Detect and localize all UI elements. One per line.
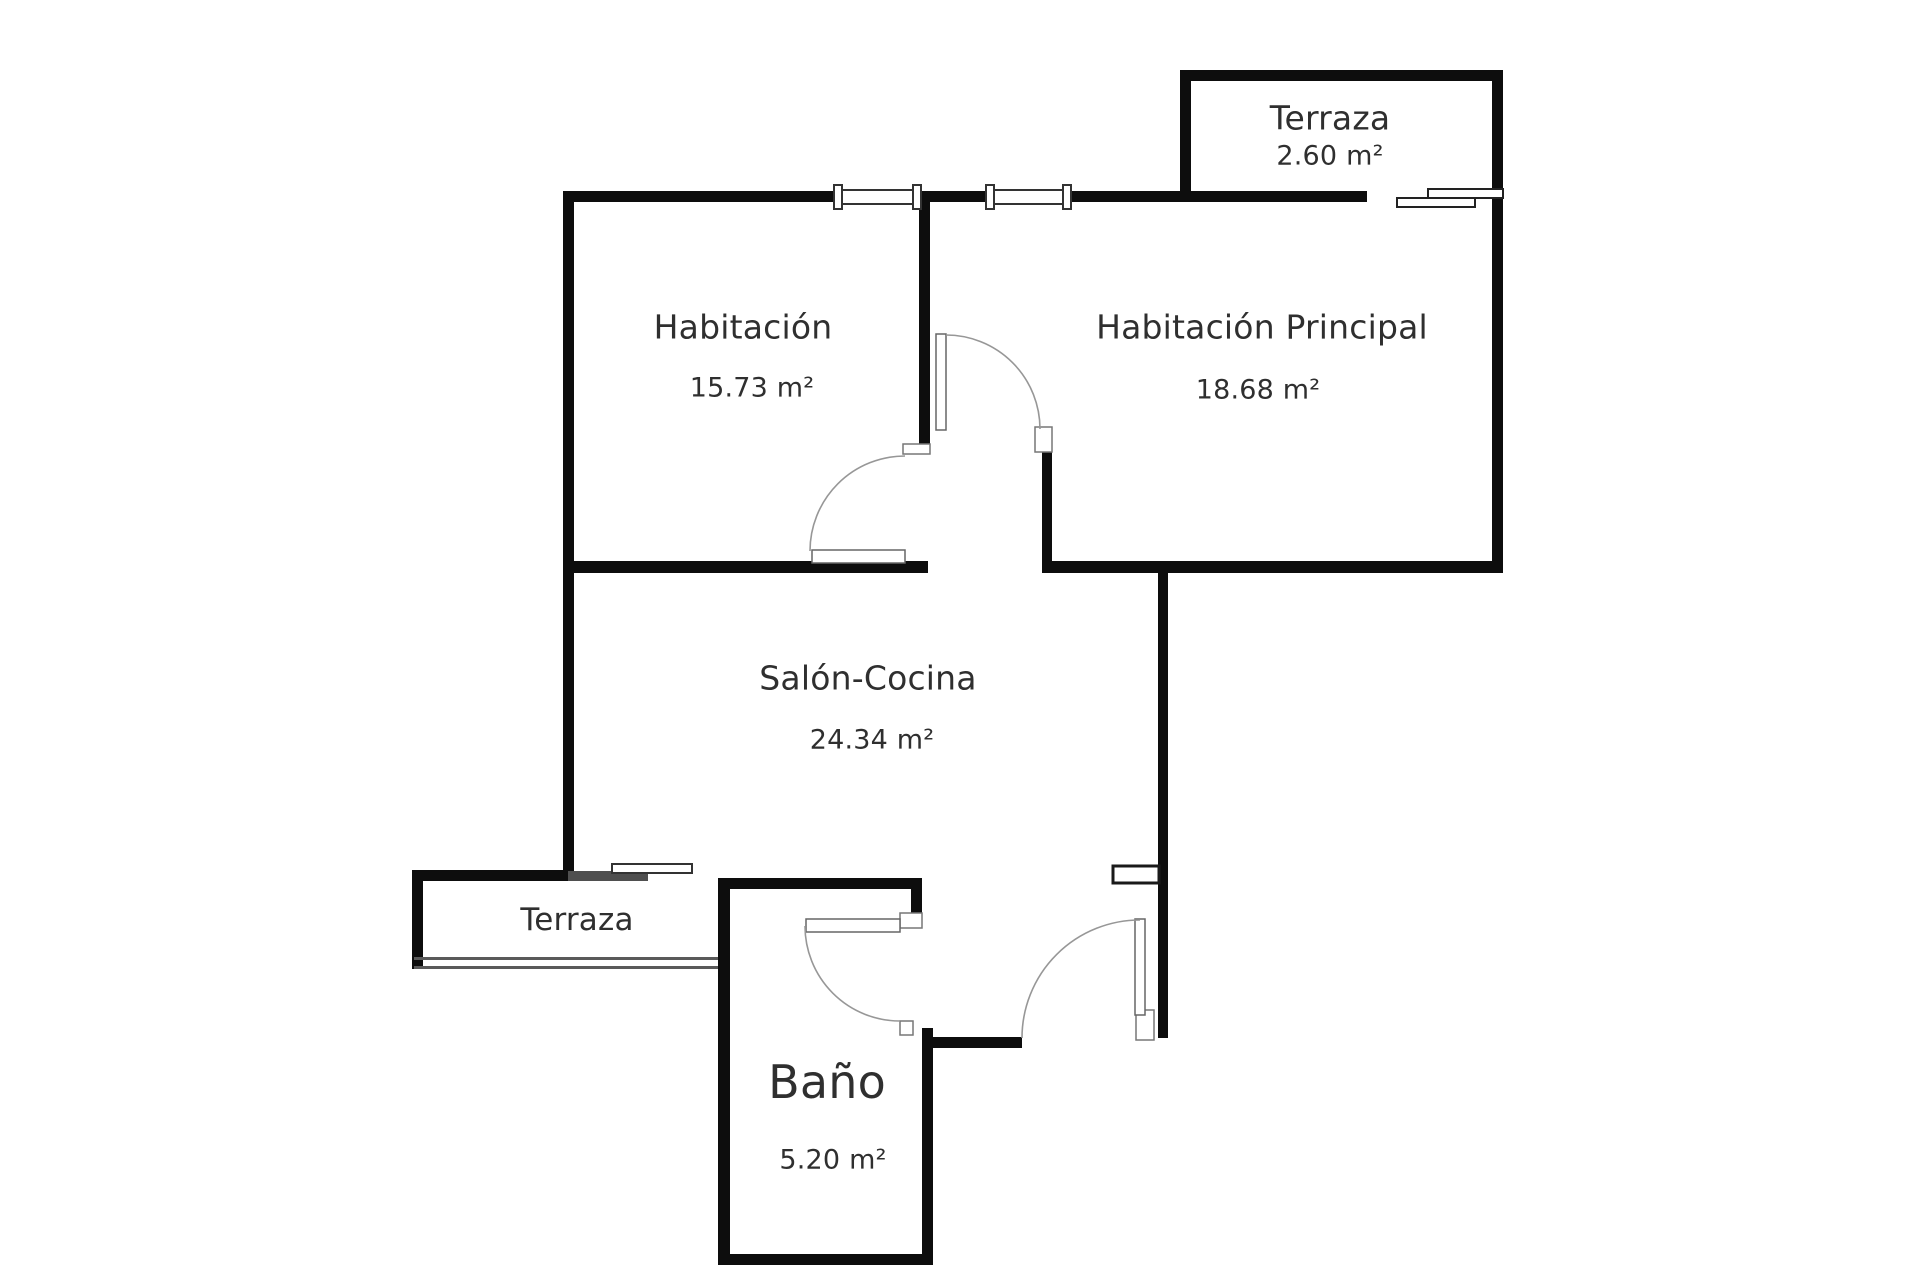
wall-habprincipal-door-stub — [1042, 450, 1052, 565]
door-leaf-habprincipal — [936, 334, 946, 430]
window-symbol-habitacion — [834, 185, 921, 209]
door-swing-arc-habitacion — [810, 456, 905, 551]
sliding-door-symbol-terraza-top — [1397, 189, 1503, 207]
wall-left-main — [563, 191, 574, 877]
wall-bano-left — [718, 878, 730, 1265]
wall-bano-bottom — [718, 1254, 933, 1265]
door-leaf-bano — [806, 919, 900, 932]
jamb-habprincipal-door — [1035, 427, 1052, 452]
door-leaf-habitacion — [812, 550, 905, 563]
door-swing-arc-habprincipal — [946, 335, 1040, 429]
room-area-bano: 5.20 m² — [779, 1145, 886, 1176]
floor-plan: Terraza 2.60 m² Habitación 15.73 m² Habi… — [0, 0, 1920, 1280]
room-name-terraza-top: Terraza — [1270, 99, 1391, 138]
room-area-salon-cocina: 24.34 m² — [810, 725, 935, 756]
floor-plan-drawing — [0, 0, 1920, 1280]
wall-habprincipal-top-b — [1066, 191, 1367, 202]
sliding-doors — [568, 189, 1503, 881]
window-symbol-habprincipal — [986, 185, 1071, 209]
wall-bano-top — [718, 878, 922, 889]
wall-terraza-bottom-left — [412, 870, 423, 969]
wall-habprincipal-top-a — [930, 191, 992, 202]
door-jambs — [900, 427, 1154, 1040]
room-name-habitacion-principal: Habitación Principal — [1096, 308, 1428, 347]
room-name-bano: Baño — [768, 1055, 886, 1109]
wall-bano-right-upper — [911, 888, 922, 915]
room-name-terraza-bottom: Terraza — [520, 902, 633, 938]
wall-habitacion-top — [563, 191, 837, 202]
railing-line-outer — [414, 957, 718, 960]
room-name-habitacion: Habitación — [654, 308, 833, 347]
jamb-bano-door-top — [900, 913, 922, 928]
wall-salon-right — [1158, 572, 1168, 1038]
door-swing-arc-entry — [1022, 920, 1140, 1038]
wall-corridor-bottom — [922, 1037, 1022, 1048]
windows — [834, 185, 1159, 883]
wall-terraza-bottom-top — [412, 870, 568, 881]
wall-habitacion-divider — [919, 191, 930, 450]
sliding-door-symbol-terraza-bottom — [568, 864, 692, 881]
room-name-salon-cocina: Salón-Cocina — [759, 659, 976, 698]
terrace-railing — [414, 957, 718, 969]
wall-bano-right-lower — [922, 1028, 933, 1265]
wall-terraza-top-left — [1180, 70, 1191, 196]
jamb-bano-door-bottom — [900, 1021, 913, 1035]
window-symbol-salon-right — [1113, 866, 1159, 883]
room-area-habitacion-principal: 18.68 m² — [1196, 375, 1321, 406]
room-area-habitacion: 15.73 m² — [690, 373, 815, 404]
door-leaf-entry — [1135, 919, 1145, 1015]
wall-right-main — [1492, 70, 1503, 573]
door-swing-arc-bano — [805, 926, 900, 1021]
wall-terraza-top-top — [1180, 70, 1503, 81]
wall-habprincipal-bottom — [1042, 561, 1503, 573]
railing-line-inner — [414, 966, 718, 969]
jamb-habitacion-door — [903, 444, 930, 454]
room-area-terraza-top: 2.60 m² — [1276, 141, 1383, 172]
